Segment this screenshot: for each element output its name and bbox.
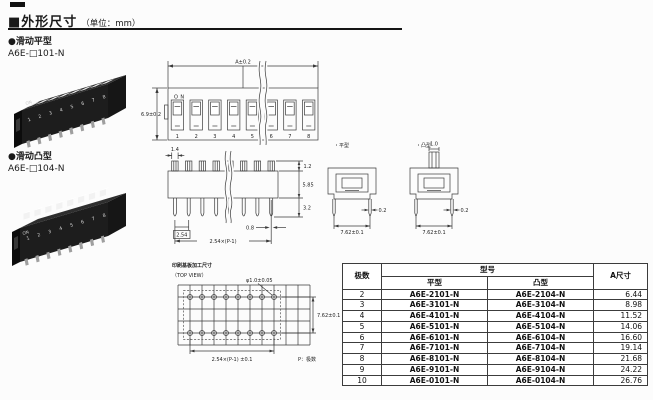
dim-knob-width: 1.4 [166, 147, 185, 159]
product-photo-convex: ON 1 2 3 4 5 6 7 8 [10, 180, 142, 272]
body-side-tab [165, 105, 169, 119]
flat-row-pitch-label: 7.62±0.1 [340, 230, 363, 236]
dim-protrusion-label: 1.2 [304, 164, 312, 170]
convex-pin-thickness-label: 0.2 [461, 208, 469, 214]
datasheet-page: ■外形尺寸（单位：mm） ●滑动平型 A6E-□101-N ON 1 2 3 4… [0, 0, 653, 400]
cell-a-dim: 19.14 [594, 343, 648, 354]
section-convex-label: ●滑动凸型 [8, 152, 64, 164]
table-row: 6A6E-6101-NA6E-6104-N16.60 [343, 332, 648, 343]
svg-text:3: 3 [213, 134, 216, 140]
pcb-poles-note: P：极数 [298, 356, 316, 363]
model-table: 极数 型号 A尺寸 平型 凸型 2A6E-2101-NA6E-2104-N6.4… [342, 263, 648, 386]
cell-poles: 8 [343, 354, 382, 365]
cell-model-convex: A6E-5104-N [488, 321, 594, 332]
photo-flat-side-recess [16, 118, 20, 132]
terminal-pins [173, 198, 272, 216]
body-outline [168, 171, 278, 198]
cell-model-flat: A6E-9101-N [382, 364, 488, 375]
table-body: 2A6E-2101-NA6E-2104-N6.443A6E-3101-NA6E-… [343, 289, 648, 386]
pcb-grid [178, 285, 310, 345]
cell-poles: 7 [343, 343, 382, 354]
break-lines [259, 61, 267, 145]
cell-poles: 3 [343, 300, 382, 311]
section-convex-header: ●滑动凸型 A6E-□104-N [8, 152, 64, 175]
slider-knobs [172, 161, 275, 171]
svg-text:7: 7 [288, 134, 291, 140]
cell-model-convex: A6E-2104-N [488, 289, 594, 300]
cell-a-dim: 16.60 [594, 332, 648, 343]
table-row: 10A6E-0101-NA6E-0104-N26.76 [343, 375, 648, 386]
switch-body-outline [168, 88, 318, 140]
cell-poles: 2 [343, 289, 382, 300]
cell-a-dim: 6.44 [594, 289, 648, 300]
svg-text:4: 4 [232, 134, 235, 140]
svg-text:8: 8 [307, 134, 310, 140]
col-header-convex: 凸型 [488, 276, 594, 289]
cell-a-dim: 26.76 [594, 375, 648, 386]
convex-pin-left [415, 199, 417, 217]
cell-model-flat: A6E-3101-N [382, 300, 488, 311]
section-flat-label: ●滑动平型 [8, 37, 64, 49]
svg-text:5: 5 [251, 134, 254, 140]
title-rule [8, 28, 402, 30]
pcb-holes [188, 295, 277, 336]
convex-body-outline [410, 168, 458, 199]
cell-model-convex: A6E-8104-N [488, 354, 594, 365]
right-dimensions: 1.2 5.85 3.2 [274, 161, 314, 217]
cell-model-flat: A6E-7101-N [382, 343, 488, 354]
pcb-row-pitch-dimension: 7.62±0.1 [282, 297, 340, 333]
col-header-poles: 极数 [343, 264, 382, 290]
pcb-span-dimension: 2.54×(P-1) ±0.1 P：极数 [190, 338, 316, 363]
table-row: 7A6E-7101-NA6E-7104-N19.14 [343, 343, 648, 354]
svg-text:1.4: 1.4 [171, 147, 179, 153]
section-flat-header: ●滑动平型 A6E-□101-N [8, 37, 64, 60]
col-header-flat: 平型 [382, 276, 488, 289]
dim-pin-length-label: 3.2 [303, 206, 311, 212]
cell-poles: 10 [343, 375, 382, 386]
pcb-title: 印刷基板加工尺寸 [172, 262, 212, 269]
section-flat-model: A6E-□101-N [8, 49, 64, 61]
cell-model-convex: A6E-4104-N [488, 311, 594, 322]
switch-positions: 1 2 3 4 5 6 7 8 [171, 100, 315, 140]
dim-span-label: 2.54×(P-1) [209, 239, 236, 245]
pcb-span-label: 2.54×(P-1) ±0.1 [212, 357, 253, 363]
side-views-drawing: ・平型 0.2 7.62±0.1 ・凸型 1.0 [325, 138, 487, 248]
section-convex-model: A6E-□104-N [8, 164, 64, 176]
cell-model-convex: A6E-6104-N [488, 332, 594, 343]
convex-knob-width-label: 1.0 [430, 142, 438, 148]
dim-height-label: 6.9±0.2 [141, 112, 161, 118]
cell-poles: 5 [343, 321, 382, 332]
dim-body-height-label: 5.85 [303, 183, 314, 189]
cell-model-convex: A6E-3104-N [488, 300, 594, 311]
photo-convex-side-recess [14, 236, 18, 250]
cell-model-flat: A6E-5101-N [382, 321, 488, 332]
col-header-model: 型号 [382, 264, 594, 277]
cell-model-convex: A6E-9104-N [488, 364, 594, 375]
product-photo-flat: ON 1 2 3 4 5 6 7 8 [12, 64, 140, 154]
svg-text:2: 2 [195, 134, 198, 140]
table-row: 8A6E-8101-NA6E-8104-N21.68 [343, 354, 648, 365]
dim-pitch-label: 2.54 [176, 233, 187, 239]
photo-flat-front-face [22, 84, 108, 144]
side-view-convex: ・凸型 1.0 0.2 7.62±0.1 [410, 142, 468, 237]
cell-poles: 4 [343, 311, 382, 322]
photo-convex-front-face [20, 202, 108, 262]
side-elevation-drawing: 1.4 [150, 143, 335, 265]
table-row: 3A6E-3101-NA6E-3104-N8.98 [343, 300, 648, 311]
pcb-view-label: （TOP VIEW） [172, 273, 207, 279]
cell-model-convex: A6E-0104-N [488, 375, 594, 386]
cell-a-dim: 8.98 [594, 300, 648, 311]
front-view-top-dimension: A±0.2 [168, 60, 318, 89]
cell-model-flat: A6E-0101-N [382, 375, 488, 386]
cell-a-dim: 24.22 [594, 364, 648, 375]
model-table-head: 极数 型号 A尺寸 平型 凸型 [343, 264, 648, 290]
cell-a-dim: 11.52 [594, 311, 648, 322]
dim-a-label: A±0.2 [235, 60, 251, 66]
break-lines [225, 151, 232, 223]
cell-a-dim: 21.68 [594, 354, 648, 365]
svg-text:6: 6 [270, 134, 273, 140]
table-row: 5A6E-5101-NA6E-5104-N14.06 [343, 321, 648, 332]
side-view-flat: ・平型 0.2 7.62±0.1 [328, 142, 386, 236]
pcb-outline-dashed [184, 291, 281, 340]
pcb-drawing: 印刷基板加工尺寸 （TOP VIEW） φ1.0±0.05 7.62±0.1 [160, 258, 352, 373]
cell-model-flat: A6E-6101-N [382, 332, 488, 343]
convex-knob [429, 152, 439, 168]
table-row: 2A6E-2101-NA6E-2104-N6.44 [343, 289, 648, 300]
front-view-left-dimension: 6.9±0.2 [141, 88, 167, 140]
cell-a-dim: 14.06 [594, 321, 648, 332]
col-header-adim: A尺寸 [594, 264, 648, 290]
scan-artifact [10, 2, 25, 7]
table-row: 4A6E-4101-NA6E-4104-N11.52 [343, 311, 648, 322]
flat-pin-thickness-label: 0.2 [379, 208, 387, 214]
cell-model-flat: A6E-2101-N [382, 289, 488, 300]
dim-pin-width-label: 0.8 [246, 226, 254, 232]
flat-body-outline [328, 168, 376, 199]
flat-pin-left [333, 199, 335, 217]
side-view-flat-label: ・平型 [334, 142, 349, 149]
flat-pin-right [369, 199, 371, 217]
on-label: ON [174, 95, 187, 101]
cell-poles: 9 [343, 364, 382, 375]
cell-model-flat: A6E-4101-N [382, 311, 488, 322]
svg-text:1: 1 [176, 134, 179, 140]
pcb-hole-dia-label: φ1.0±0.05 [246, 278, 273, 284]
table-row: 9A6E-9101-NA6E-9104-N24.22 [343, 364, 648, 375]
cell-poles: 6 [343, 332, 382, 343]
convex-row-pitch-label: 7.62±0.1 [422, 230, 445, 236]
convex-pin-right [451, 199, 453, 217]
cell-model-flat: A6E-8101-N [382, 354, 488, 365]
pcb-row-pitch-label: 7.62±0.1 [317, 313, 340, 319]
cell-model-convex: A6E-7104-N [488, 343, 594, 354]
